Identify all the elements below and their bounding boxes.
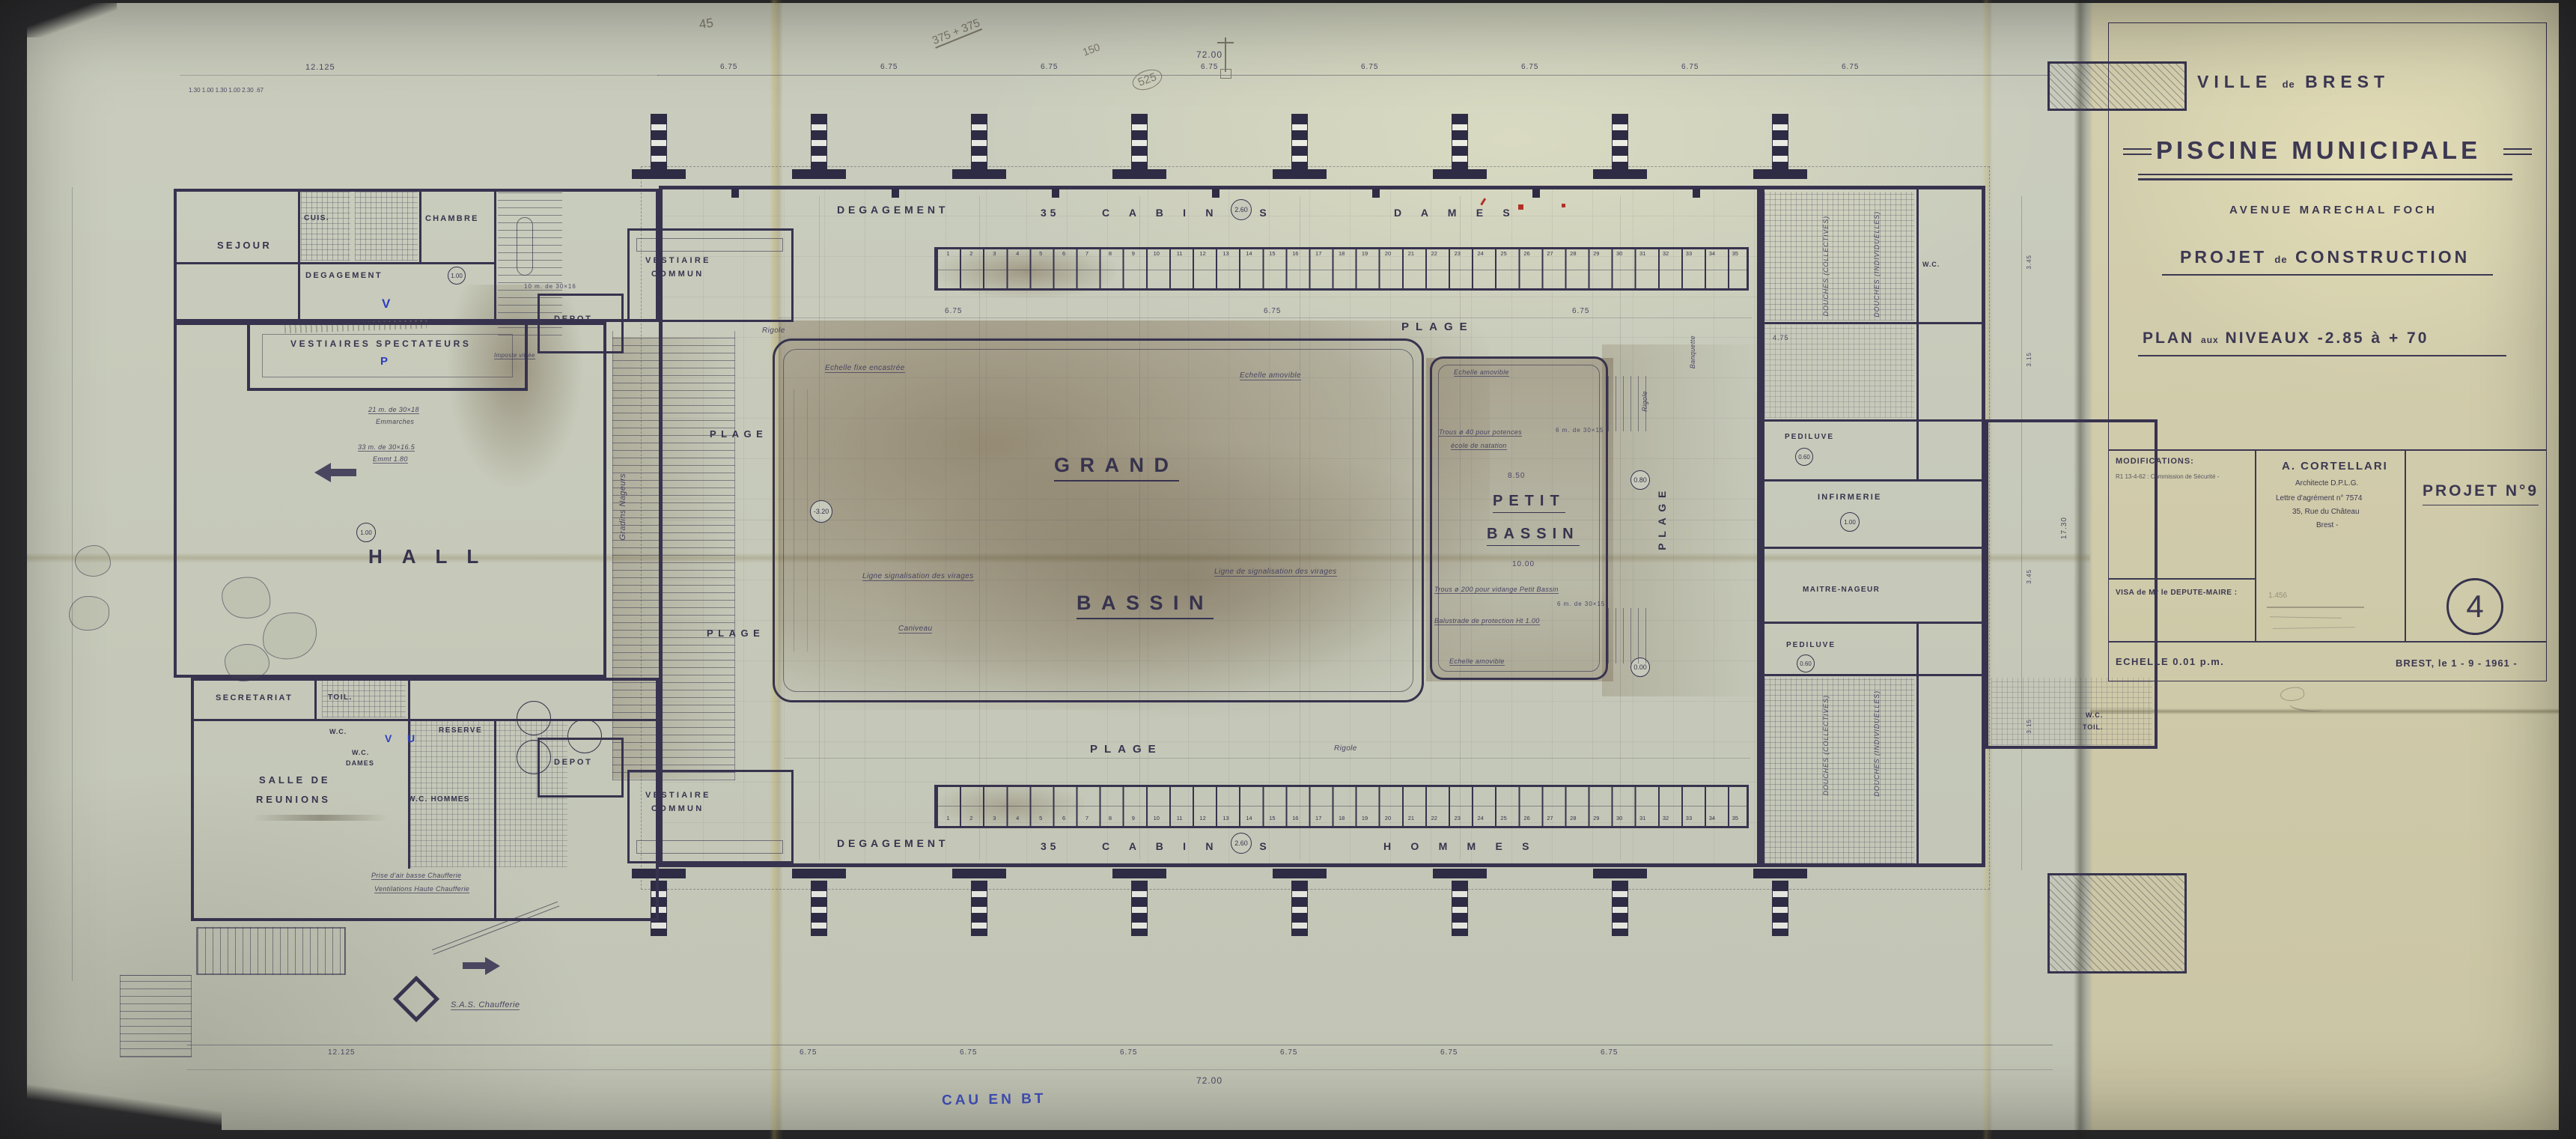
column — [1131, 114, 1148, 169]
cabins-count-bottom: 35 — [1041, 840, 1059, 852]
level-mark: 1.00 — [1840, 512, 1860, 532]
visa-label: VISA de Mr le DEPUTE-MAIRE : — [2116, 589, 2238, 597]
mullion — [1532, 189, 1540, 198]
plan-underline — [2138, 355, 2506, 356]
axis-line — [1620, 196, 1621, 860]
mullion — [1693, 189, 1700, 198]
note-balustrade: Balustrade de protection Ht 1.00 — [1434, 617, 1540, 625]
column — [1291, 114, 1308, 169]
column — [1452, 881, 1468, 936]
room-toil: TOIL. — [328, 693, 353, 702]
dim-bay: 6.75 — [1120, 1048, 1137, 1057]
table-line — [2108, 641, 2547, 643]
note-echelle-fixe: Echelle fixe encastrée — [825, 364, 905, 373]
room-grand-bassin: BASSIN — [1077, 592, 1214, 619]
mullion — [1372, 189, 1380, 198]
room-chambre: CHAMBRE — [425, 214, 479, 223]
dim-bay: 6.75 — [1264, 307, 1281, 315]
architect-title: Architecte D.P.L.G. — [2295, 479, 2358, 488]
hall-walls — [174, 322, 606, 678]
axis-line — [1460, 196, 1461, 860]
blue-mark-u: U — [407, 732, 415, 744]
exit-arrow-icon — [485, 957, 500, 975]
pool-steps — [1608, 376, 1650, 431]
pencil-survey-crossbar — [1217, 42, 1234, 43]
partition — [1761, 419, 1985, 422]
title-eq-right — [2503, 154, 2532, 155]
partition — [494, 189, 496, 322]
column-base — [952, 869, 1006, 878]
label-vestiaire-2: COMMUN — [651, 270, 704, 279]
partition — [1916, 189, 1919, 481]
dim-chain: 1.30 1.00 1.30 1.00 2.30 .67 — [189, 87, 264, 94]
visa-pencil-number: 1.456 — [2268, 592, 2287, 600]
pool-steps — [1608, 608, 1650, 663]
column-base — [1112, 169, 1166, 179]
start-wall-line — [807, 389, 808, 651]
photo-corner-shadow — [27, 1071, 222, 1139]
note-banquette: Banquette — [1689, 335, 1696, 368]
column-base — [1273, 869, 1327, 878]
titleblock-city: VILLE de BREST — [2197, 72, 2390, 92]
column — [1612, 881, 1628, 936]
column-base — [1593, 169, 1647, 179]
annex-tiles — [1991, 678, 2152, 745]
modifications-label: MODIFICATIONS: — [2116, 457, 2194, 466]
column — [1131, 881, 1148, 936]
dim-total-top: 72.00 — [1196, 49, 1222, 60]
zone-plage-bottom: PLAGE — [1090, 743, 1163, 756]
visa-pencil-line — [2267, 607, 2364, 608]
projet-de: de — [2274, 254, 2287, 265]
dim-v: 3.45 — [2026, 255, 2033, 270]
red-mark — [1518, 204, 1523, 210]
bathroom-tiles — [301, 192, 350, 261]
petit-bassin-inner — [1438, 365, 1600, 672]
dim-bay: 6.75 — [1280, 1048, 1297, 1057]
room-douches-collectives-2: DOUCHES (COLLECTIVES) — [1822, 695, 1830, 795]
pencil-smear — [253, 815, 388, 821]
ville-de: de — [2283, 79, 2295, 90]
stair-tower-bottom — [2047, 873, 2187, 974]
architect-address: 35, Rue du Château — [2292, 508, 2360, 516]
dim-bay: 6.75 — [720, 63, 737, 71]
partition — [1761, 322, 1985, 324]
architect-agrement: Lettre d'agrément n° 7574 — [2276, 494, 2362, 502]
partition — [1761, 674, 1985, 676]
cabins-count-top: 35 — [1041, 207, 1059, 219]
column — [811, 114, 827, 169]
note-rigole-top: Rigole — [762, 326, 785, 335]
cabin-midline — [937, 270, 1747, 270]
projet-number: PROJET N°9 — [2423, 482, 2539, 505]
room-wc-right: W.C. — [1922, 261, 1940, 268]
room-maitre-nageur: MAITRE-NAGEUR — [1803, 586, 1880, 594]
title-underline-2 — [2138, 178, 2512, 180]
dim-bay: 6.75 — [1201, 63, 1218, 71]
room-wc-toil-1: W.C. — [2086, 711, 2103, 719]
mullion — [1212, 189, 1220, 198]
room-hall: HALL — [368, 545, 498, 568]
note-6m-1: 6 m. de 30×15 — [1556, 427, 1604, 434]
room-wc-dames-2: DAMES — [346, 759, 374, 767]
column-base — [1593, 869, 1647, 878]
room-douches-individuelles-1: DOUCHES (INDIVIDUELLES) — [1873, 211, 1881, 318]
cabin-numbers-bottom: 1234567891011121314151617181920212223242… — [937, 815, 1747, 825]
dim-bay: 6.75 — [1681, 63, 1699, 71]
shower-tiles — [1764, 678, 1914, 863]
column-base — [1273, 169, 1327, 179]
blue-mark-v: V — [382, 297, 390, 312]
partition — [1916, 622, 1919, 865]
fold-crease-h — [2090, 708, 2559, 714]
architect-name: A. CORTELLARI — [2282, 460, 2388, 473]
note-gradins-nageurs: Gradins Nageurs — [618, 473, 627, 541]
table-line — [2108, 449, 2547, 451]
level-mark: 2.60 — [1231, 833, 1252, 854]
room-petit-bassin: BASSIN — [1487, 526, 1580, 546]
mullion — [731, 189, 739, 198]
start-wall-line — [794, 389, 794, 651]
plan-2: NIVEAUX -2.85 à + 70 — [2226, 329, 2429, 347]
tree-blob — [75, 545, 111, 577]
blue-note-bottom: CAU EN BT — [942, 1091, 1047, 1109]
exit-arrow-tail — [463, 962, 487, 969]
room-douches-collectives-1: DOUCHES (COLLECTIVES) — [1822, 216, 1830, 316]
dim-bay: 6.75 — [945, 307, 962, 315]
title-eq-right — [2503, 148, 2532, 150]
partition — [174, 262, 496, 264]
column-base — [1433, 169, 1487, 179]
column-base — [792, 169, 846, 179]
dim-bay: 6.75 — [800, 1048, 817, 1057]
room-wc-hommes: W.C. HOMMES — [408, 795, 470, 804]
shower-tiles — [1764, 192, 1914, 321]
room-secretariat: SECRETARIAT — [216, 693, 293, 702]
dimension-line — [657, 75, 2051, 76]
wc-tiles — [410, 721, 567, 867]
note-ligne-virages-1: Ligne signalisation des virages — [862, 572, 974, 581]
note-echelle-amovible-1: Echelle amovible — [1240, 371, 1301, 380]
bleachers-edge — [734, 331, 735, 780]
column — [971, 114, 987, 169]
dim-petit-l: 10.00 — [1512, 560, 1535, 568]
axis-line — [979, 196, 980, 860]
column-base — [952, 169, 1006, 179]
dim-left-bottom: 12.125 — [328, 1048, 356, 1057]
column-base — [1433, 869, 1487, 878]
partition — [1761, 547, 1985, 549]
level-mark: 1.00 — [356, 523, 376, 542]
dim-bay: 6.75 — [1572, 307, 1589, 315]
axis-line — [1139, 196, 1140, 860]
note-prise-air: Prise d'air basse Chaufferie — [371, 872, 461, 880]
axis-line-h — [662, 520, 1758, 520]
dimension-line — [187, 1045, 2053, 1045]
pencil-note-45: 45 — [698, 16, 715, 32]
level-mark: 0.60 — [1797, 654, 1815, 672]
dim-petit-w: 8.50 — [1508, 472, 1525, 480]
dimension-line — [187, 1069, 2053, 1070]
mullion — [892, 189, 899, 198]
blue-mark-v2: V — [385, 732, 392, 744]
room-pediluve-2: PEDILUVE — [1786, 641, 1836, 649]
note-ventilations: Ventilations Haute Chaufferie — [374, 885, 469, 893]
table-line-v — [2405, 449, 2406, 641]
partition — [1761, 479, 1985, 482]
exterior-steps — [196, 927, 346, 975]
dim-left-top: 12.125 — [305, 63, 335, 72]
partition — [314, 678, 317, 719]
axis-line — [819, 196, 820, 860]
photo-of-blueprint: 72.00 6.75 6.75 6.75 6.75 6.75 6.75 6.75… — [0, 0, 2576, 1139]
titleblock-title: PISCINE MUNICIPALE — [2156, 136, 2481, 165]
note-6m-2: 6 m. de 30×15 — [1557, 601, 1605, 607]
blue-mark-p: P — [380, 355, 388, 368]
entry-arrow-tail — [331, 469, 356, 476]
column-base — [1753, 869, 1807, 878]
cabins-dames-label: D A M E S — [1394, 207, 1518, 219]
shower-tiles — [1764, 325, 1914, 418]
axis-line — [1300, 196, 1300, 860]
column-base — [1112, 869, 1166, 878]
plan-aux: aux — [2201, 335, 2219, 345]
partition — [419, 189, 421, 264]
dim-bay: 6.75 — [1521, 63, 1538, 71]
room-wc: W.C. — [329, 728, 347, 735]
dim-bay: 6.75 — [1041, 63, 1058, 71]
room-salle-1: SALLE DE — [259, 774, 330, 786]
dim-bay: 6.75 — [1842, 63, 1859, 71]
deck-dim-line — [785, 758, 1750, 759]
title-eq-left — [2123, 154, 2152, 155]
room-petit: PETIT — [1493, 493, 1565, 513]
table-line — [2108, 578, 2255, 580]
room-salle-2: REUNIONS — [256, 794, 331, 805]
sheet-number-circle: 4 — [2446, 578, 2503, 635]
level-mark: 1.00 — [448, 267, 466, 285]
note-rigole-bottom: Rigole — [1334, 744, 1357, 753]
dim-bay: 6.75 — [1440, 1048, 1458, 1057]
partition — [298, 189, 300, 322]
label-vestiaire-b2: COMMUN — [651, 804, 704, 813]
titleblock-projet: PROJET de CONSTRUCTION — [2180, 247, 2470, 267]
note-sas: S.A.S. Chaufferie — [451, 1000, 520, 1010]
room-wc-toil-2: TOIL. — [2083, 723, 2103, 731]
title-eq-left — [2123, 148, 2152, 150]
note-echelle-amovible-2: Echelle amovible — [1454, 368, 1509, 377]
deck-dim-line — [779, 318, 1752, 318]
room-wc-dames-1: W.C. — [352, 749, 369, 756]
room-degagement: DEGAGEMENT — [305, 271, 383, 280]
dimension-line-v — [72, 187, 73, 981]
note-vidange: Trous ø 200 pour vidange Petit Bassin — [1434, 586, 1559, 594]
room-cuis: CUIS. — [304, 214, 329, 222]
level-mark: 0.60 — [1795, 448, 1813, 466]
column — [1291, 881, 1308, 936]
photo-corner-shadow — [27, 3, 117, 37]
column-base — [632, 169, 686, 179]
note-echelle-amovible-3: Echelle amovible — [1449, 657, 1505, 666]
column — [1772, 114, 1788, 169]
dim-bay: 6.75 — [960, 1048, 977, 1057]
column — [1772, 881, 1788, 936]
title-underline-1 — [2138, 174, 2512, 175]
dim-bay: 6.75 — [1361, 63, 1378, 71]
room-douches-individuelles-2: DOUCHES (INDIVIDUELLES) — [1873, 690, 1881, 797]
column — [971, 881, 987, 936]
column — [1612, 114, 1628, 169]
projet-underline — [2162, 274, 2493, 276]
ville-1: VILLE — [2197, 72, 2272, 91]
stair-newel — [517, 217, 533, 276]
zone-plage-top: PLAGE — [1401, 321, 1474, 333]
table-line-v — [2255, 449, 2256, 641]
column-base — [792, 869, 846, 878]
partition — [1761, 622, 1985, 624]
note-trous-potences-1: Trous ø 40 pour potences — [1439, 428, 1522, 437]
grand-bassin-inner — [783, 349, 1413, 692]
note-stair-21m: 21 m. de 30×18 — [368, 406, 419, 414]
level-mark: 2.60 — [1231, 199, 1252, 220]
zone-degagement-bottom: DEGAGEMENT — [837, 837, 949, 849]
tree-blob — [69, 596, 109, 631]
zone-degagement-top: DEGAGEMENT — [837, 204, 949, 216]
note-stair-33m: 33 m. de 30×16.5 — [358, 443, 415, 452]
note-emmt: Emmt 1.80 — [373, 455, 408, 464]
column — [811, 881, 827, 936]
room-infirmerie: INFIRMERIE — [1818, 493, 1882, 502]
titleblock-plan-line: PLAN aux NIVEAUX -2.85 à + 70 — [2143, 329, 2429, 347]
entry-arrow-icon — [314, 463, 331, 482]
note-emmarches: Emmarches — [376, 418, 414, 425]
room-sejour: SEJOUR — [217, 240, 272, 251]
scale-label: ECHELLE 0.01 p.m. — [2116, 656, 2224, 667]
note-caniveau: Caniveau — [898, 625, 932, 634]
dimension-line — [180, 75, 659, 76]
projet-1: PROJET — [2180, 247, 2267, 267]
architect-city: Brest - — [2316, 521, 2338, 529]
note-ligne-virages-2: Ligne de signalisation des virages — [1214, 568, 1337, 577]
exterior-steps — [120, 975, 192, 1057]
cabin-numbers-top: 1234567891011121314151617181920212223242… — [937, 250, 1747, 261]
date-label: BREST, le 1 - 9 - 1961 - — [2396, 657, 2518, 669]
room-reserve: RESERVE — [439, 726, 482, 735]
column — [651, 114, 667, 169]
column-base — [1753, 169, 1807, 179]
cabin-midline — [937, 806, 1747, 807]
dim-v: 3.15 — [2026, 352, 2033, 367]
titleblock-avenue: AVENUE MARECHAL FOCH — [2229, 204, 2438, 216]
zone-plage-right: PLAGE — [1656, 485, 1668, 550]
ville-2: BREST — [2305, 72, 2390, 91]
room-pediluve-1: PEDILUVE — [1785, 433, 1834, 441]
dim-bay: 6.75 — [880, 63, 898, 71]
bathroom-tiles — [355, 192, 418, 261]
red-mark — [1562, 204, 1565, 207]
pencil-survey-base — [1220, 69, 1231, 79]
modifications-entry: R1 13-4-62 : Commission de Sécurité - — [2116, 473, 2219, 480]
level-mark: 0.80 — [1630, 470, 1650, 490]
dim-total-bottom: 72.00 — [1196, 1075, 1222, 1086]
mullion — [1052, 189, 1059, 198]
projet-2: CONSTRUCTION — [2295, 247, 2470, 267]
plan-1: PLAN — [2143, 329, 2194, 347]
dim-bay: 6.75 — [1601, 1048, 1618, 1057]
room-grand: GRAND — [1054, 454, 1179, 482]
column — [1452, 114, 1468, 169]
